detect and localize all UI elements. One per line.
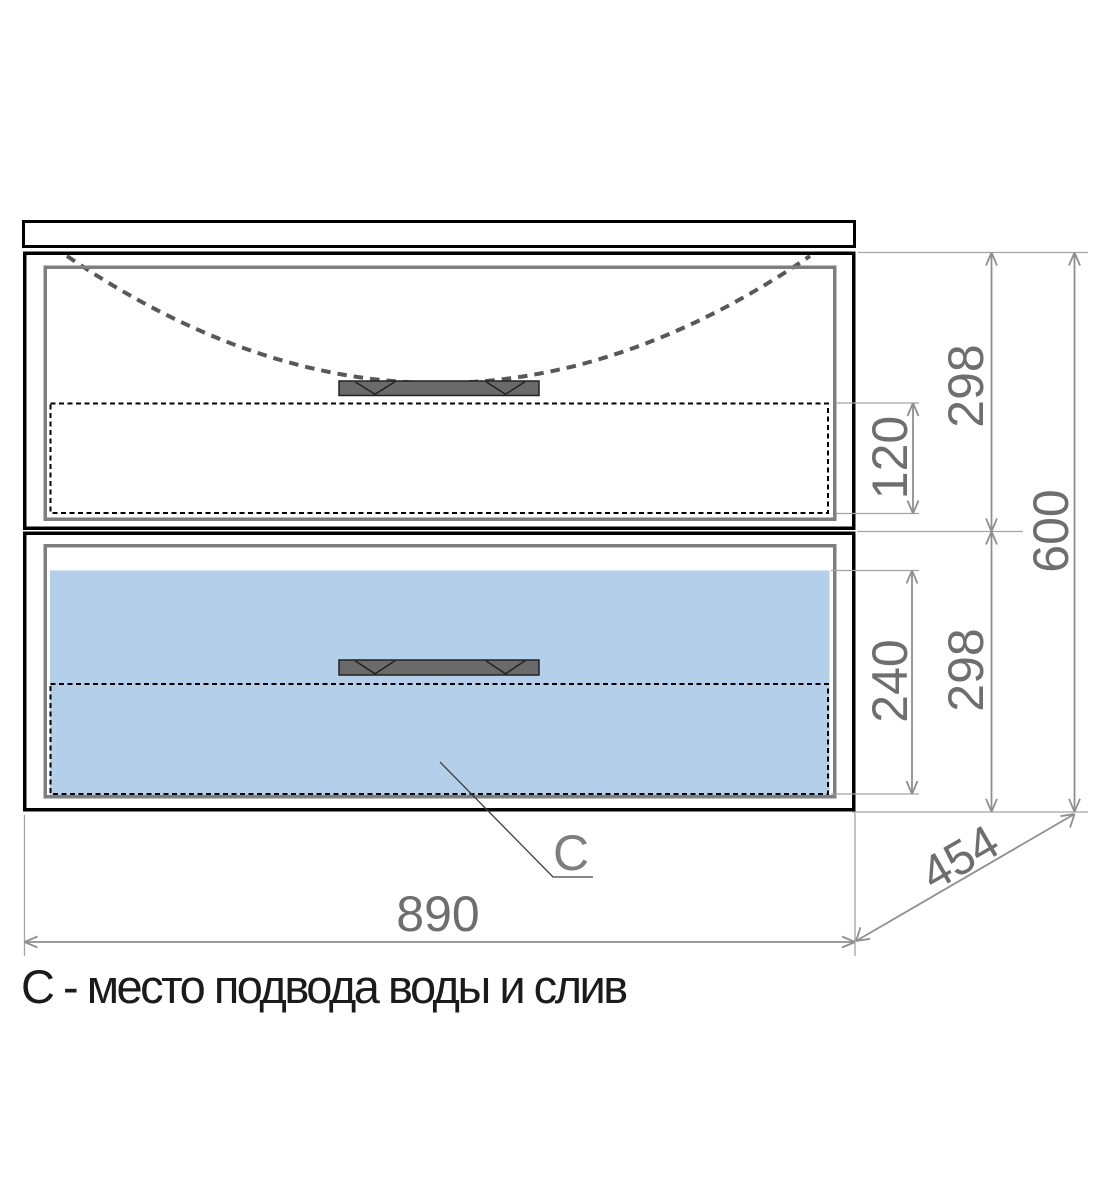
svg-text:С - место подвода воды и слив: С - место подвода воды и слив: [21, 960, 626, 1013]
svg-text:C: C: [553, 825, 589, 881]
svg-text:120: 120: [862, 416, 918, 499]
svg-text:298: 298: [938, 344, 994, 427]
svg-text:240: 240: [862, 639, 918, 722]
svg-text:298: 298: [938, 628, 994, 711]
svg-text:890: 890: [396, 886, 479, 942]
svg-text:600: 600: [1023, 489, 1079, 572]
